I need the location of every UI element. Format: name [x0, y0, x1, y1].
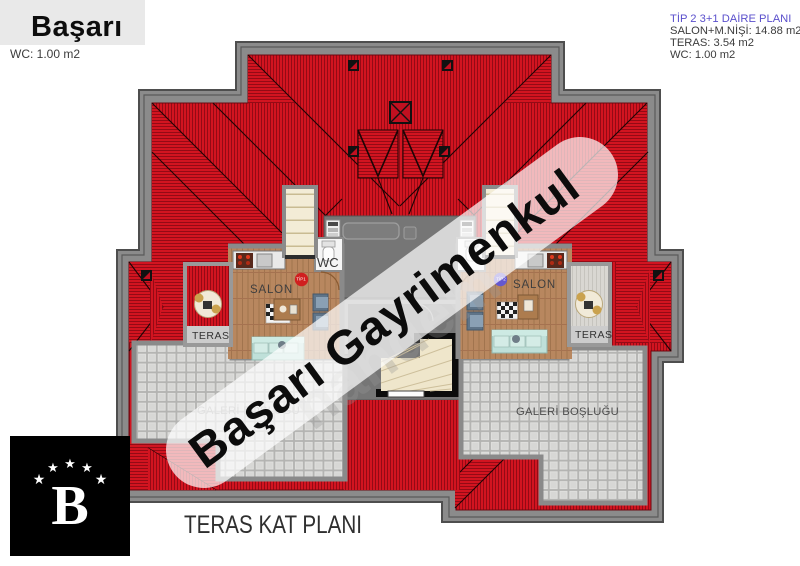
svg-text:WC: WC — [317, 255, 339, 270]
svg-text:★: ★ — [95, 471, 108, 487]
svg-text:★: ★ — [47, 460, 59, 475]
svg-text:TERAS: 3.54 m2: TERAS: 3.54 m2 — [670, 37, 754, 49]
svg-text:★: ★ — [33, 471, 46, 487]
svg-text:SALON: SALON — [513, 279, 556, 291]
svg-text:GALERİ BOŞLUĞU: GALERİ BOŞLUĞU — [516, 405, 619, 418]
svg-text:WC: 1.00 m2: WC: 1.00 m2 — [670, 49, 735, 61]
svg-text:Başarı: Başarı — [31, 11, 123, 43]
svg-text:TİP 2 3+1 DAİRE PLANI: TİP 2 3+1 DAİRE PLANI — [670, 12, 791, 25]
svg-text:TERAS KAT PLANI: TERAS KAT PLANI — [184, 511, 362, 539]
svg-text:SALON+M.NİŞİ: 14.88 m2: SALON+M.NİŞİ: 14.88 m2 — [670, 24, 800, 37]
svg-text:B: B — [51, 475, 88, 537]
svg-text:SALON: SALON — [250, 284, 293, 296]
svg-text:TERAS: TERAS — [192, 330, 230, 342]
svg-text:TİP1: TİP1 — [296, 276, 306, 282]
svg-text:WC: 1.00 m2: WC: 1.00 m2 — [10, 47, 80, 61]
svg-text:★: ★ — [64, 456, 76, 471]
svg-text:★: ★ — [81, 460, 93, 475]
svg-text:TERAS: TERAS — [575, 329, 613, 341]
